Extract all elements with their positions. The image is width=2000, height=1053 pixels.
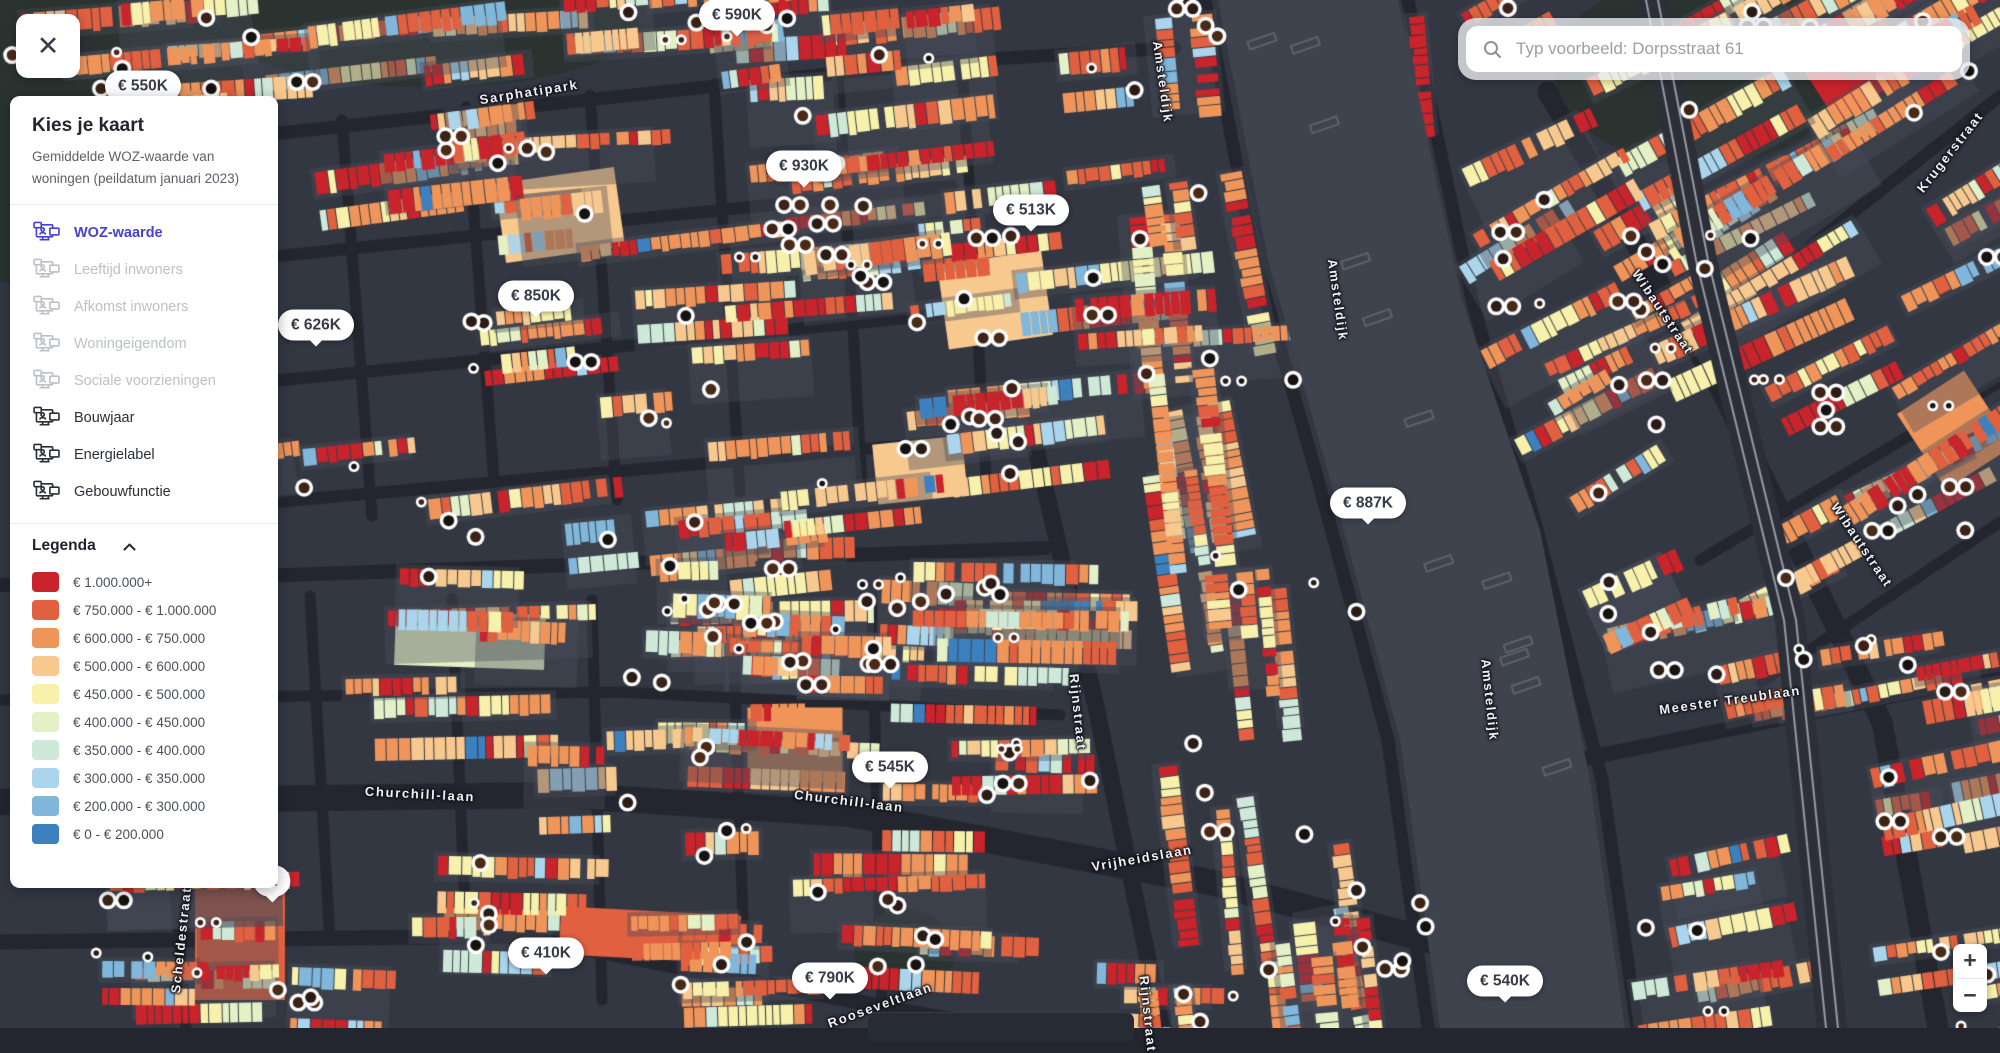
legend-swatch xyxy=(32,740,59,760)
legend-label: € 1.000.000+ xyxy=(73,575,152,590)
search-input[interactable] xyxy=(1514,38,1946,60)
legend-label: € 200.000 - € 300.000 xyxy=(73,799,205,814)
legend-swatch xyxy=(32,572,59,592)
legend-swatch xyxy=(32,796,59,816)
street-label: Amsteldijk xyxy=(1325,258,1351,342)
street-label: Vrijheidslaan xyxy=(1090,842,1193,875)
price-label[interactable]: € 850K xyxy=(498,281,574,312)
search-field xyxy=(1466,26,1962,72)
legend-entry: € 750.000 - € 1.000.000 xyxy=(32,596,256,624)
close-icon: ✕ xyxy=(37,33,60,60)
map-type-menu: WOZ-waardeLeeftijd inwonersAfkomst inwon… xyxy=(32,214,256,510)
price-label[interactable]: € 545K xyxy=(852,752,928,783)
map-options-panel: Kies je kaart Gemiddelde WOZ-waarde van … xyxy=(10,96,278,888)
panel-subtitle: Gemiddelde WOZ-waarde van woningen (peil… xyxy=(32,146,256,189)
zoom-control: + − xyxy=(1953,944,1987,1012)
zoom-out-button[interactable]: − xyxy=(1953,979,1987,1013)
menu-item-label: Woningeigendom xyxy=(74,336,187,352)
legend-entry: € 350.000 - € 400.000 xyxy=(32,736,256,764)
street-label: Churchill-laan xyxy=(793,787,904,815)
menu-item-label: Sociale voorzieningen xyxy=(74,373,216,389)
legend-entry: € 400.000 - € 450.000 xyxy=(32,708,256,736)
legend-swatch xyxy=(32,712,59,732)
legend-label: € 500.000 - € 600.000 xyxy=(73,659,205,674)
legend-title: Legenda xyxy=(32,537,96,555)
panel-title: Kies je kaart xyxy=(32,115,256,137)
legend-swatch xyxy=(32,684,59,704)
street-label: Amsteldijk xyxy=(1150,40,1176,124)
street-label: Sarphatipark xyxy=(479,77,580,107)
street-label: Rijnstraat xyxy=(1067,673,1090,751)
menu-item-label: Afkomst inwoners xyxy=(74,299,188,315)
street-label: Scheldestraat xyxy=(168,886,194,994)
close-panel-button[interactable]: ✕ xyxy=(16,14,80,78)
search-bar xyxy=(1458,18,1970,80)
menu-item-label: Gebouwfunctie xyxy=(74,484,171,500)
legend-label: € 600.000 - € 750.000 xyxy=(73,631,205,646)
map-overlay: SarphatiparkAmsteldijkAmsteldijkAmsteldi… xyxy=(0,0,2000,1028)
price-label[interactable]: € 626K xyxy=(278,310,354,341)
price-label[interactable]: € 410K xyxy=(508,938,584,969)
menu-item-sociale-voorzieningen: Sociale voorzieningen xyxy=(32,362,256,399)
street-label: Churchill-laan xyxy=(365,784,476,805)
legend-label: € 300.000 - € 350.000 xyxy=(73,771,205,786)
menu-item-woz-waarde[interactable]: WOZ-waarde xyxy=(32,214,256,251)
legend-entry: € 500.000 - € 600.000 xyxy=(32,652,256,680)
menu-item-bouwjaar[interactable]: Bouwjaar xyxy=(32,399,256,436)
legend-label: € 450.000 - € 500.000 xyxy=(73,687,205,702)
legend-entry: € 300.000 - € 350.000 xyxy=(32,764,256,792)
legend-label: € 400.000 - € 450.000 xyxy=(73,715,205,730)
legend-collapse-chevron-icon[interactable] xyxy=(122,542,137,552)
search-icon xyxy=(1482,39,1503,60)
price-label[interactable]: € 540K xyxy=(1467,966,1543,997)
street-label: Wibautstraat xyxy=(1828,500,1896,590)
legend-entry: € 600.000 - € 750.000 xyxy=(32,624,256,652)
street-label: Meester Treublaan xyxy=(1658,683,1802,718)
menu-item-gebouwfunctie[interactable]: Gebouwfunctie xyxy=(32,473,256,510)
legend-entry: € 1.000.000+ xyxy=(32,568,256,596)
legend-header: Legenda xyxy=(32,537,256,555)
menu-item-label: Bouwjaar xyxy=(74,410,134,426)
legend-entry: € 450.000 - € 500.000 xyxy=(32,680,256,708)
panel-divider xyxy=(10,204,278,205)
street-label: Wibautstraat xyxy=(1629,267,1697,357)
legend-entry: € 200.000 - € 300.000 xyxy=(32,792,256,820)
map-attribution-box xyxy=(868,1012,1134,1042)
legend-entry: € 0 - € 200.000 xyxy=(32,820,256,848)
menu-item-energielabel[interactable]: Energielabel xyxy=(32,436,256,473)
price-label[interactable]: € 887K xyxy=(1330,488,1406,519)
price-label[interactable]: € 790K xyxy=(792,963,868,994)
price-label[interactable]: € 513K xyxy=(993,195,1069,226)
legend-swatch xyxy=(32,824,59,844)
price-label[interactable]: € 590K xyxy=(699,0,775,31)
street-label: Amsteldijk xyxy=(1478,658,1502,742)
legend-swatch xyxy=(32,768,59,788)
zoom-in-button[interactable]: + xyxy=(1953,944,1987,978)
menu-item-leeftijd-inwoners: Leeftijd inwoners xyxy=(32,251,256,288)
legend-label: € 750.000 - € 1.000.000 xyxy=(73,603,216,618)
menu-item-label: WOZ-waarde xyxy=(74,225,163,241)
menu-item-label: Energielabel xyxy=(74,447,155,463)
legend-label: € 0 - € 200.000 xyxy=(73,827,164,842)
menu-item-woningeigendom: Woningeigendom xyxy=(32,325,256,362)
price-label[interactable]: € 930K xyxy=(766,151,842,182)
menu-item-label: Leeftijd inwoners xyxy=(74,262,183,278)
legend: € 1.000.000+€ 750.000 - € 1.000.000€ 600… xyxy=(32,568,256,848)
legend-swatch xyxy=(32,656,59,676)
legend-swatch xyxy=(32,628,59,648)
legend-label: € 350.000 - € 400.000 xyxy=(73,743,205,758)
menu-item-afkomst-inwoners: Afkomst inwoners xyxy=(32,288,256,325)
panel-divider xyxy=(10,523,278,524)
legend-swatch xyxy=(32,600,59,620)
street-label: Krugerstraat xyxy=(1914,109,1986,196)
street-label: Rijnstraat xyxy=(1137,975,1160,1053)
